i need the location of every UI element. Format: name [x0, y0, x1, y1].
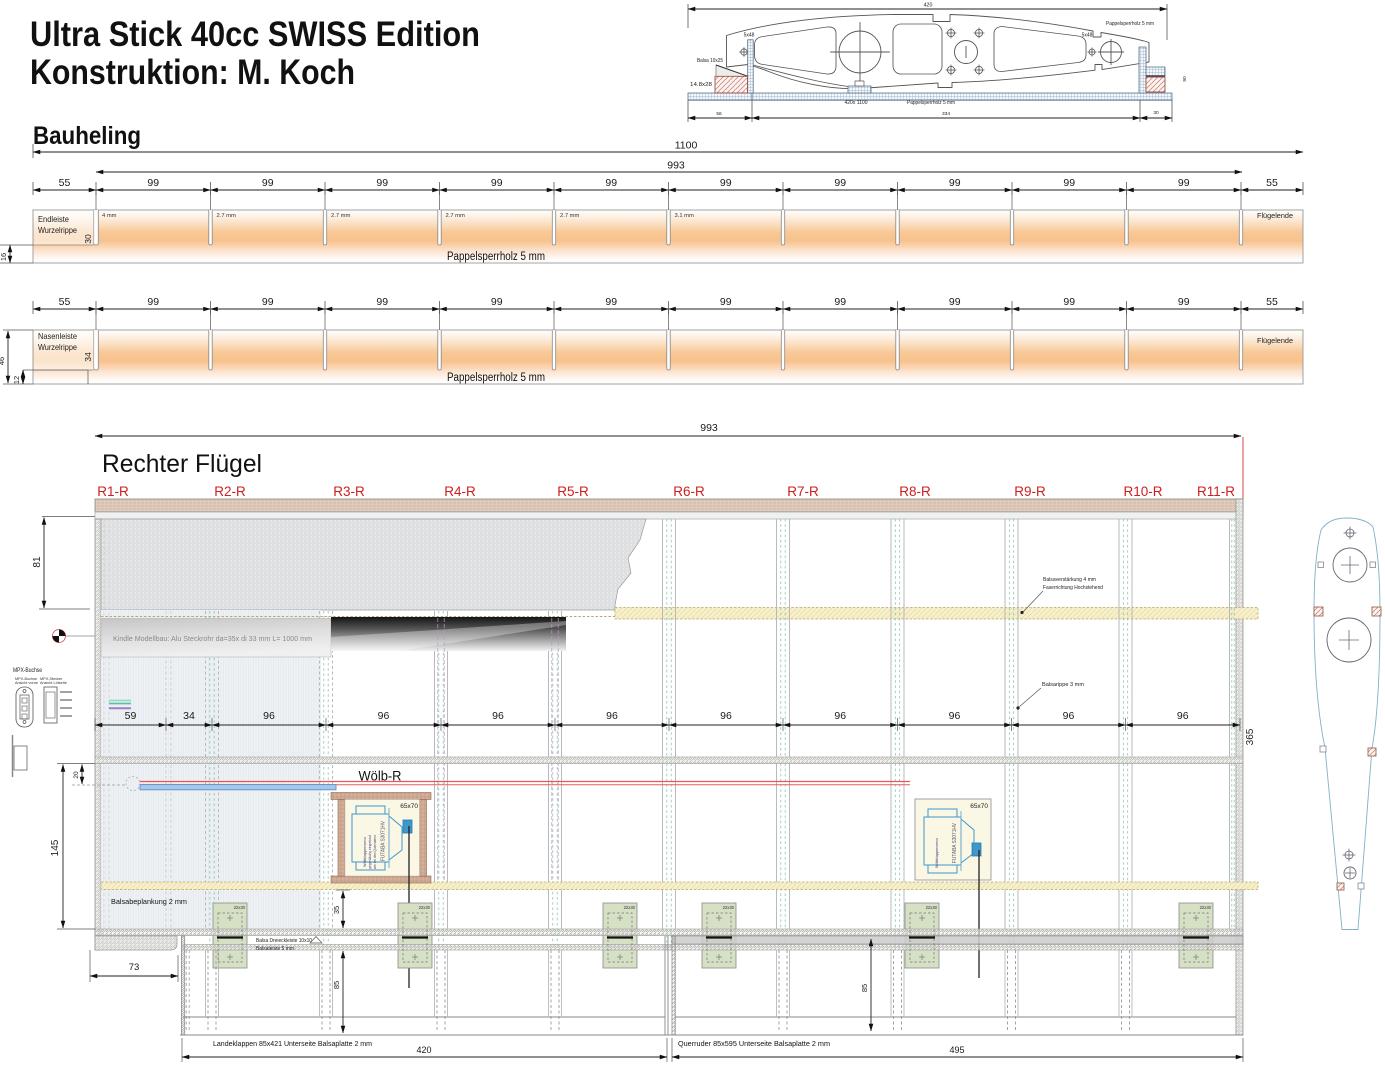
svg-text:96: 96 — [492, 710, 504, 722]
svg-text:99: 99 — [605, 296, 617, 308]
svg-text:56: 56 — [716, 111, 722, 117]
svg-text:R10-R: R10-R — [1123, 484, 1162, 499]
svg-text:Pappelsperrholz 5 mm: Pappelsperrholz 5 mm — [447, 251, 545, 263]
svg-text:Balsaverstärkung 4 mm: Balsaverstärkung 4 mm — [1043, 577, 1096, 583]
svg-text:99: 99 — [834, 177, 846, 189]
svg-text:Balsarippe 3 mm: Balsarippe 3 mm — [1042, 682, 1084, 688]
svg-text:2.7 mm: 2.7 mm — [446, 213, 465, 219]
svg-text:99: 99 — [1063, 296, 1075, 308]
svg-text:65x70: 65x70 — [970, 803, 988, 810]
svg-text:Rechter Flügel: Rechter Flügel — [102, 450, 262, 478]
svg-text:R7-R: R7-R — [787, 484, 819, 499]
svg-text:99: 99 — [720, 177, 732, 189]
svg-text:Wurzelrippe: Wurzelrippe — [38, 225, 77, 235]
svg-text:Wurzelrippe: Wurzelrippe — [38, 342, 77, 352]
svg-text:FUTABA S3071HV: FUTABA S3071HV — [952, 823, 958, 863]
svg-text:96: 96 — [263, 710, 275, 722]
svg-text:96: 96 — [949, 710, 961, 722]
svg-text:85: 85 — [332, 981, 341, 989]
svg-text:96: 96 — [834, 710, 846, 722]
svg-text:96: 96 — [1063, 710, 1075, 722]
svg-text:R2-R: R2-R — [214, 484, 246, 499]
svg-text:22x30: 22x30 — [723, 905, 735, 910]
svg-text:Konstruktion: M. Koch: Konstruktion: M. Koch — [30, 53, 355, 92]
svg-text:22x30: 22x30 — [624, 905, 636, 910]
svg-text:81: 81 — [32, 556, 43, 568]
svg-text:Wölb-R: Wölb-R — [359, 769, 402, 784]
svg-text:99: 99 — [720, 296, 732, 308]
svg-text:99: 99 — [1178, 177, 1190, 189]
svg-text:Nasenleiste: Nasenleiste — [38, 331, 77, 341]
svg-text:R3-R: R3-R — [333, 484, 365, 499]
svg-text:Wölbklappenservo: Wölbklappenservo — [934, 837, 939, 868]
svg-text:2.7 mm: 2.7 mm — [331, 213, 350, 219]
svg-text:420x 1100: 420x 1100 — [845, 100, 868, 106]
svg-text:Landeklappen 85x421 Untersei: Landeklappen 85x421 Unterseite Balsaplat… — [213, 1041, 372, 1048]
svg-text:99: 99 — [949, 296, 961, 308]
svg-text:Bauheling: Bauheling — [33, 122, 141, 150]
svg-text:R1-R: R1-R — [97, 484, 129, 499]
svg-text:96: 96 — [378, 710, 390, 722]
svg-text:Querruder 85x595 Unterseite: Querruder 85x595 Unterseite Balsaplatte … — [678, 1041, 830, 1048]
svg-text:5x48: 5x48 — [1082, 33, 1093, 39]
svg-text:Flügelende: Flügelende — [1257, 336, 1293, 345]
svg-text:1100: 1100 — [675, 140, 698, 152]
svg-text:73: 73 — [129, 962, 140, 973]
svg-text:R6-R: R6-R — [673, 484, 705, 499]
svg-text:55: 55 — [1266, 296, 1278, 308]
svg-text:4 mm: 4 mm — [102, 213, 117, 219]
svg-text:Faserrichtung Hochstehend: Faserrichtung Hochstehend — [1043, 585, 1103, 591]
svg-text:22x30: 22x30 — [234, 905, 246, 910]
svg-text:99: 99 — [376, 177, 388, 189]
svg-text:FUTABA S3071HV: FUTABA S3071HV — [381, 821, 387, 861]
svg-text:85: 85 — [860, 984, 869, 992]
svg-text:MPX-Buchse: MPX-Buchse — [13, 668, 43, 674]
svg-text:96: 96 — [606, 710, 618, 722]
svg-text:wie bei den Querrudern: wie bei den Querrudern — [372, 835, 377, 869]
svg-text:16: 16 — [0, 253, 8, 261]
svg-text:Endleiste: Endleiste — [38, 214, 69, 224]
svg-text:Balsa Dreieckleiste 10x10: Balsa Dreieckleiste 10x10 — [256, 938, 312, 944]
svg-text:34: 34 — [183, 710, 195, 722]
svg-text:Pappelsperrholz 5 mm: Pappelsperrholz 5 mm — [1106, 21, 1154, 27]
svg-text:55: 55 — [59, 177, 71, 189]
svg-text:30: 30 — [83, 234, 93, 244]
svg-text:90: 90 — [1182, 76, 1188, 82]
svg-text:Pappelsperrholz 5 mm: Pappelsperrholz 5 mm — [907, 100, 955, 106]
svg-text:99: 99 — [949, 177, 961, 189]
svg-text:30: 30 — [1153, 110, 1159, 116]
svg-text:55: 55 — [1266, 177, 1278, 189]
svg-text:2.7 mm: 2.7 mm — [560, 213, 579, 219]
svg-text:420: 420 — [416, 1045, 431, 1055]
svg-text:55: 55 — [59, 296, 71, 308]
svg-text:Ansicht vorne: Ansicht vorne — [15, 681, 38, 685]
svg-text:Balsabeplankung 2 mm: Balsabeplankung 2 mm — [111, 897, 187, 906]
svg-text:22x30: 22x30 — [419, 905, 431, 910]
svg-text:993: 993 — [700, 422, 718, 434]
svg-text:99: 99 — [1063, 177, 1075, 189]
svg-text:99: 99 — [147, 296, 159, 308]
svg-text:99: 99 — [147, 177, 159, 189]
svg-text:12: 12 — [12, 376, 21, 384]
svg-text:Ultra Stick 40cc SWISS Editio: Ultra Stick 40cc SWISS Edition — [30, 15, 480, 54]
svg-text:99: 99 — [262, 296, 274, 308]
svg-text:R4-R: R4-R — [444, 484, 476, 499]
svg-text:14.8x28: 14.8x28 — [690, 82, 712, 88]
svg-text:Kindle Modellbau: Alu Steckroh: Kindle Modellbau: Alu Steckrohr da=35x d… — [113, 634, 312, 643]
svg-text:R5-R: R5-R — [557, 484, 589, 499]
svg-text:99: 99 — [376, 296, 388, 308]
svg-text:365: 365 — [1245, 728, 1256, 745]
svg-text:R9-R: R9-R — [1014, 484, 1046, 499]
svg-text:495: 495 — [949, 1045, 964, 1055]
svg-text:34: 34 — [83, 352, 93, 362]
svg-text:R11-R: R11-R — [1197, 484, 1235, 499]
svg-text:46: 46 — [0, 357, 6, 365]
svg-text:5x48: 5x48 — [744, 33, 755, 39]
svg-text:Ansicht Lötseite: Ansicht Lötseite — [40, 681, 67, 685]
svg-text:22x30: 22x30 — [1200, 905, 1212, 910]
svg-text:20: 20 — [73, 771, 80, 779]
svg-text:993: 993 — [667, 160, 685, 172]
svg-text:96: 96 — [720, 710, 732, 722]
svg-text:Balsa 10x25: Balsa 10x25 — [697, 58, 723, 64]
svg-text:Flügelende: Flügelende — [1257, 211, 1293, 220]
svg-text:59: 59 — [125, 710, 137, 722]
svg-text:145: 145 — [50, 839, 61, 856]
svg-text:99: 99 — [1178, 296, 1190, 308]
svg-text:R8-R: R8-R — [899, 484, 931, 499]
svg-text:35: 35 — [332, 906, 341, 914]
svg-text:22x30: 22x30 — [926, 905, 938, 910]
svg-text:99: 99 — [262, 177, 274, 189]
svg-text:2.7 mm: 2.7 mm — [217, 213, 236, 219]
svg-text:65x70: 65x70 — [400, 803, 418, 810]
svg-text:Pappelsperrholz 5 mm: Pappelsperrholz 5 mm — [447, 372, 545, 384]
svg-text:Balsaleiste 5 mm: Balsaleiste 5 mm — [256, 946, 294, 952]
svg-text:420: 420 — [924, 3, 933, 9]
svg-text:99: 99 — [605, 177, 617, 189]
svg-text:99: 99 — [491, 296, 503, 308]
svg-text:3.1 mm: 3.1 mm — [675, 213, 694, 219]
svg-text:96: 96 — [1177, 710, 1189, 722]
svg-text:99: 99 — [491, 177, 503, 189]
svg-text:334: 334 — [942, 111, 950, 117]
svg-text:99: 99 — [834, 296, 846, 308]
